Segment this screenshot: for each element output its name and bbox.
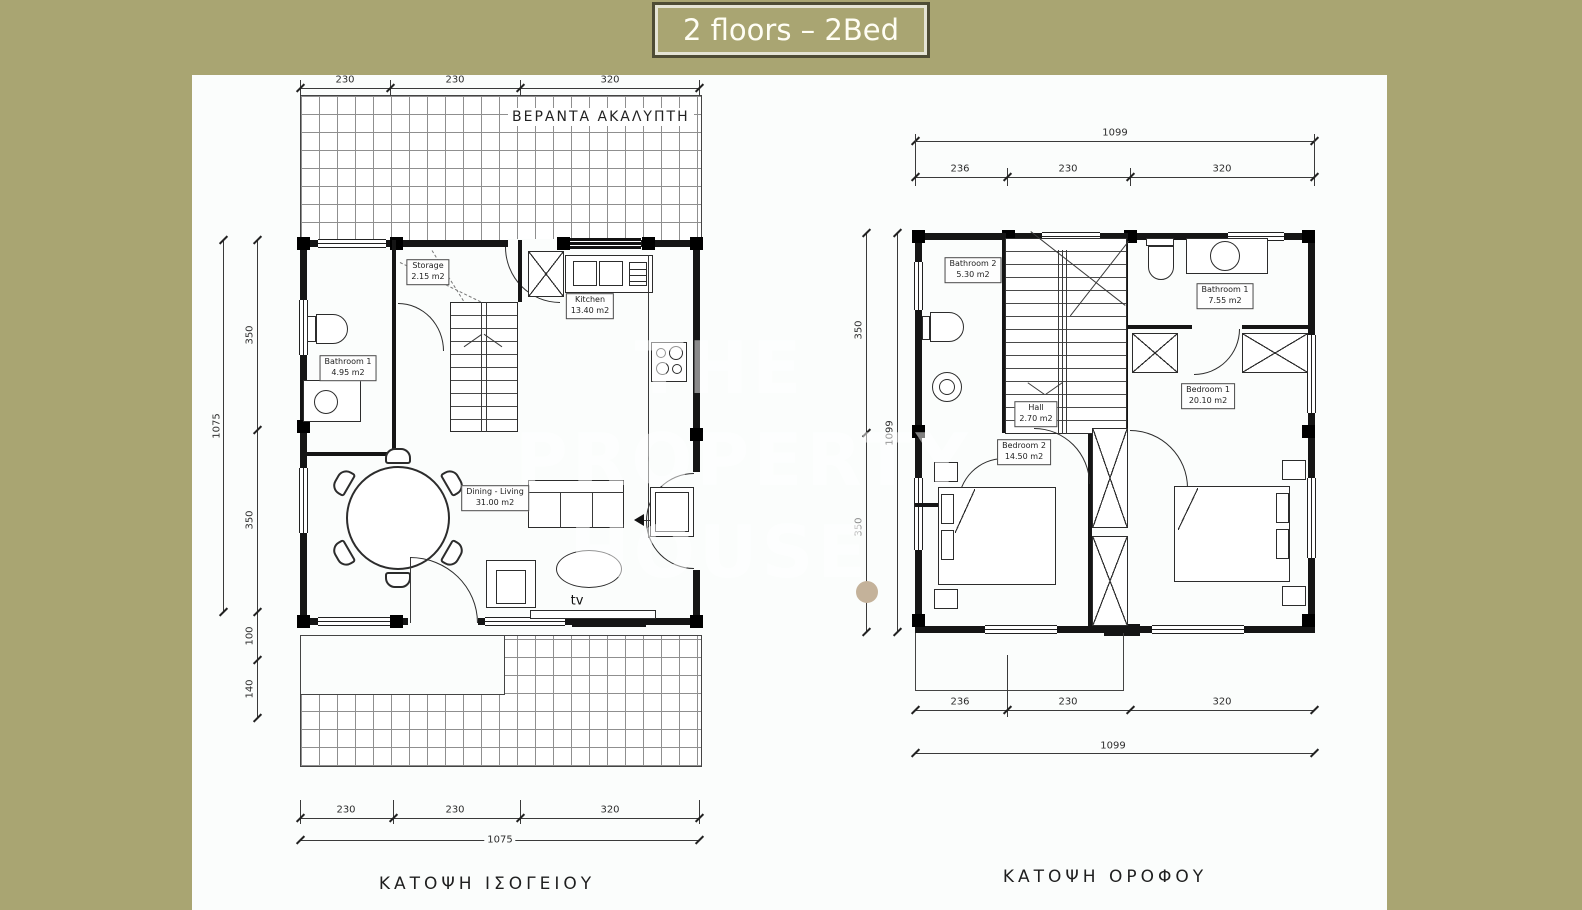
room-area: 20.10 m2 bbox=[1189, 396, 1227, 405]
nightstand bbox=[1282, 460, 1306, 480]
room-name: Bathroom 1 bbox=[325, 357, 372, 366]
room-area: 2.70 m2 bbox=[1019, 414, 1052, 423]
pillow bbox=[1276, 529, 1289, 559]
room-area: 2.15 m2 bbox=[411, 272, 444, 281]
nightstand bbox=[934, 589, 958, 609]
window bbox=[914, 262, 923, 310]
pillow bbox=[941, 530, 954, 560]
room-label-ff-bathroom1: Bathroom 1 7.55 m2 bbox=[1197, 283, 1254, 309]
bed-fold bbox=[955, 489, 975, 533]
room-area: 14.50 m2 bbox=[1005, 452, 1043, 461]
room-name: Dining - Living bbox=[466, 487, 524, 496]
room-name: Kitchen bbox=[575, 295, 605, 304]
dim-label: 320 bbox=[1212, 697, 1231, 708]
first-floor-caption: ΚΑΤΟΨΗ ΟΡΟΦΟΥ bbox=[1003, 867, 1207, 887]
room-label-bedroom2: Bedroom 2 14.50 m2 bbox=[997, 439, 1051, 465]
dim-label: 1099 bbox=[1097, 741, 1128, 752]
room-label-bathroom1: Bathroom 1 4.95 m2 bbox=[320, 355, 377, 381]
nightstand bbox=[934, 462, 958, 482]
door-arc bbox=[1130, 430, 1188, 488]
bed-fold bbox=[1178, 488, 1198, 530]
dim-line bbox=[915, 753, 1315, 754]
dim-line bbox=[915, 141, 1315, 142]
window bbox=[1307, 478, 1316, 558]
room-area: 7.55 m2 bbox=[1208, 296, 1241, 305]
dim-label: 1099 bbox=[1102, 128, 1127, 139]
room-name: Storage bbox=[412, 261, 443, 270]
room-label-bathroom2: Bathroom 2 5.30 m2 bbox=[945, 257, 1002, 283]
window bbox=[1307, 335, 1316, 413]
wardrobe bbox=[1092, 428, 1128, 528]
room-name: Bedroom 1 bbox=[1186, 385, 1230, 394]
dim-line bbox=[915, 710, 1315, 711]
page-title: 2 floors – 2Bed bbox=[683, 13, 899, 47]
dim-label: 320 bbox=[1212, 164, 1231, 175]
door-arc bbox=[1194, 329, 1240, 375]
room-label-storage: Storage 2.15 m2 bbox=[406, 259, 449, 285]
first-floor-plan: 1099 236 230 320 bbox=[0, 0, 1582, 910]
room-label-kitchen: Kitchen 13.40 m2 bbox=[566, 293, 614, 319]
dim-line bbox=[897, 233, 898, 633]
room-label-hall: Hall 2.70 m2 bbox=[1014, 401, 1057, 427]
wardrobe bbox=[1242, 333, 1308, 373]
wardrobe bbox=[1092, 536, 1128, 626]
room-name: Bedroom 2 bbox=[1002, 441, 1046, 450]
dim-label: 350 bbox=[854, 320, 865, 339]
nightstand bbox=[1282, 586, 1306, 606]
room-area: 4.95 m2 bbox=[331, 368, 364, 377]
room-name: Bathroom 1 bbox=[1202, 285, 1249, 294]
room-area: 13.40 m2 bbox=[571, 306, 609, 315]
dim-label: 1099 bbox=[885, 417, 896, 448]
window bbox=[914, 478, 923, 550]
dim-label: 230 bbox=[1058, 697, 1077, 708]
room-label-bedroom1: Bedroom 1 20.10 m2 bbox=[1181, 383, 1235, 409]
window bbox=[1152, 625, 1244, 634]
room-area: 5.30 m2 bbox=[956, 270, 989, 279]
watermark-dot bbox=[856, 581, 878, 603]
pillow bbox=[1276, 493, 1289, 523]
title-banner: 2 floors – 2Bed bbox=[652, 2, 930, 58]
toilet-bowl bbox=[1148, 246, 1174, 280]
room-area: 31.00 m2 bbox=[476, 498, 514, 507]
wardrobe bbox=[1132, 333, 1178, 373]
dim-label: 230 bbox=[1058, 164, 1077, 175]
floorplan-slide: ΒΕΡΑΝΤΑ ΑΚΑΛΥΠΤΗ 230 230 320 bbox=[0, 0, 1582, 910]
dim-label: 350 bbox=[854, 517, 865, 536]
dim-label: 236 bbox=[950, 697, 969, 708]
room-name: Hall bbox=[1028, 403, 1043, 412]
toilet bbox=[1146, 238, 1174, 246]
room-name: Bathroom 2 bbox=[950, 259, 997, 268]
dim-label: 236 bbox=[950, 164, 969, 175]
sink bbox=[1210, 241, 1240, 271]
toilet bbox=[922, 316, 930, 340]
toilet-bowl bbox=[930, 312, 964, 342]
dim-line bbox=[915, 177, 1315, 178]
pillow bbox=[941, 494, 954, 524]
balcony-outline bbox=[915, 633, 1124, 691]
room-label-living: Dining - Living 31.00 m2 bbox=[461, 485, 529, 511]
